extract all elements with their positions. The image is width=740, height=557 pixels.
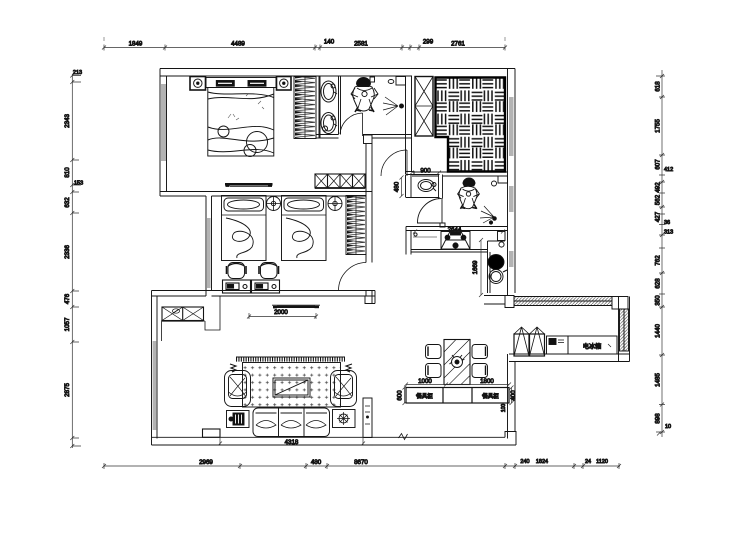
svg-text:562: 562 (655, 194, 662, 205)
svg-text:762: 762 (655, 255, 662, 266)
svg-text:240: 240 (520, 459, 529, 465)
svg-text:4318: 4318 (285, 439, 299, 446)
svg-text:898: 898 (655, 413, 662, 424)
svg-text:299: 299 (423, 39, 434, 46)
svg-text:2343: 2343 (64, 114, 71, 128)
svg-text:1824: 1824 (536, 459, 548, 465)
svg-text:100: 100 (501, 404, 507, 413)
svg-text:492: 492 (655, 182, 662, 193)
svg-text:8670: 8670 (354, 459, 368, 466)
svg-text:607: 607 (655, 159, 662, 170)
svg-text:350: 350 (655, 295, 662, 306)
svg-text:餐具柜: 餐具柜 (416, 392, 433, 400)
svg-text:153: 153 (74, 181, 83, 187)
svg-text:2969: 2969 (199, 459, 213, 466)
svg-text:1800: 1800 (480, 378, 494, 385)
svg-text:1057: 1057 (64, 317, 71, 331)
svg-text:900: 900 (420, 168, 431, 175)
svg-text:618: 618 (655, 81, 662, 92)
svg-text:1440: 1440 (655, 324, 662, 338)
svg-text:2644: 2644 (448, 227, 462, 234)
svg-text:电冰箱: 电冰箱 (583, 343, 602, 351)
svg-text:1849: 1849 (129, 41, 143, 48)
svg-text:480: 480 (394, 181, 401, 192)
svg-text:2581: 2581 (354, 41, 368, 48)
svg-text:1485: 1485 (655, 373, 662, 387)
svg-text:36: 36 (664, 220, 670, 226)
svg-text:213: 213 (73, 70, 82, 76)
svg-text:412: 412 (664, 167, 673, 173)
svg-text:400: 400 (510, 390, 517, 401)
svg-text:4489: 4489 (231, 41, 245, 48)
svg-text:628: 628 (655, 278, 662, 289)
svg-text:24: 24 (585, 459, 591, 465)
svg-text:2336: 2336 (64, 245, 71, 259)
svg-text:810: 810 (64, 167, 71, 178)
svg-text:1755: 1755 (655, 119, 662, 133)
svg-text:2875: 2875 (64, 383, 71, 397)
svg-text:10: 10 (665, 424, 671, 430)
svg-text:600: 600 (397, 390, 404, 401)
svg-text:1120: 1120 (596, 459, 608, 465)
svg-text:632: 632 (64, 197, 71, 208)
svg-text:2761: 2761 (451, 41, 465, 48)
svg-text:2000: 2000 (274, 309, 288, 316)
svg-text:476: 476 (64, 293, 71, 304)
svg-text:480: 480 (311, 459, 322, 466)
svg-text:313: 313 (664, 230, 673, 236)
svg-text:1000: 1000 (418, 378, 432, 385)
svg-text:427: 427 (655, 211, 662, 222)
svg-text:140: 140 (324, 39, 335, 46)
svg-text:餐具柜: 餐具柜 (482, 392, 499, 400)
svg-text:1669: 1669 (472, 260, 479, 274)
